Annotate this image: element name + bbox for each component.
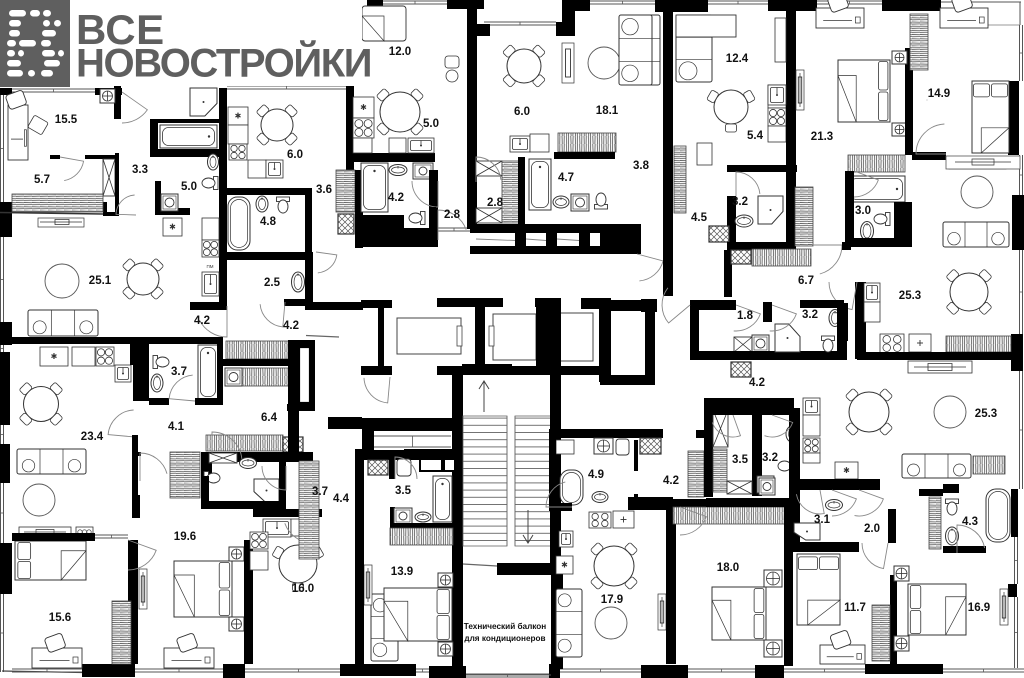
svg-text:3.0: 3.0 — [855, 205, 871, 217]
svg-text:3.2: 3.2 — [732, 196, 748, 208]
svg-text:для кондиционеров: для кондиционеров — [464, 634, 545, 643]
svg-text:4.2: 4.2 — [194, 315, 210, 327]
svg-text:4.2: 4.2 — [283, 320, 299, 332]
svg-text:15.5: 15.5 — [55, 114, 78, 126]
svg-text:16.9: 16.9 — [968, 602, 990, 614]
svg-text:25.3: 25.3 — [975, 408, 997, 420]
svg-text:3.2: 3.2 — [802, 309, 818, 321]
svg-text:14.9: 14.9 — [928, 88, 950, 100]
svg-text:Технический балкон: Технический балкон — [464, 621, 547, 631]
svg-text:6.0: 6.0 — [514, 106, 530, 118]
svg-text:✱: ✱ — [843, 466, 850, 475]
svg-text:4.1: 4.1 — [168, 421, 185, 433]
svg-text:13.9: 13.9 — [391, 566, 413, 578]
svg-text:3.8: 3.8 — [633, 160, 650, 172]
svg-text:1.8: 1.8 — [737, 310, 754, 322]
svg-text:4.8: 4.8 — [260, 216, 277, 228]
svg-text:4.5: 4.5 — [691, 212, 708, 224]
svg-text:17.9: 17.9 — [601, 594, 623, 606]
svg-text:ПМ: ПМ — [207, 264, 214, 269]
svg-text:6.0: 6.0 — [287, 149, 303, 161]
svg-text:4.2: 4.2 — [663, 475, 679, 487]
svg-text:2.0: 2.0 — [864, 523, 880, 535]
svg-text:6.7: 6.7 — [798, 275, 814, 287]
svg-text:3.1: 3.1 — [814, 514, 831, 526]
svg-text:✱: ✱ — [235, 112, 242, 121]
svg-text:2.8: 2.8 — [487, 197, 504, 209]
svg-text:3.7: 3.7 — [171, 366, 187, 378]
svg-text:✱: ✱ — [169, 223, 176, 232]
svg-text:25.3: 25.3 — [899, 290, 921, 302]
svg-text:4.3: 4.3 — [962, 516, 978, 528]
svg-text:✱: ✱ — [561, 561, 568, 570]
svg-text:✱: ✱ — [51, 352, 58, 361]
svg-text:6.4: 6.4 — [261, 412, 278, 424]
svg-text:12.4: 12.4 — [726, 53, 749, 65]
svg-text:4.4: 4.4 — [333, 493, 350, 505]
svg-text:15.6: 15.6 — [49, 612, 71, 624]
svg-text:5.7: 5.7 — [34, 174, 50, 186]
svg-text:25.1: 25.1 — [89, 275, 112, 287]
svg-text:19.6: 19.6 — [174, 531, 196, 543]
svg-text:4.2: 4.2 — [749, 377, 765, 389]
svg-text:5.4: 5.4 — [747, 130, 764, 142]
svg-text:3.7: 3.7 — [312, 486, 328, 498]
svg-text:3.5: 3.5 — [395, 485, 412, 497]
svg-text:18.0: 18.0 — [717, 562, 739, 574]
svg-text:2.5: 2.5 — [264, 277, 281, 289]
svg-text:4.2: 4.2 — [388, 192, 404, 204]
svg-text:НОВОСТРОЙКИ: НОВОСТРОЙКИ — [76, 40, 371, 86]
svg-text:3.6: 3.6 — [316, 184, 332, 196]
svg-text:2.8: 2.8 — [444, 209, 461, 221]
svg-text:3.2: 3.2 — [762, 452, 778, 464]
svg-text:21.3: 21.3 — [811, 131, 833, 143]
svg-text:5.0: 5.0 — [181, 181, 197, 193]
svg-text:4.9: 4.9 — [588, 469, 604, 481]
svg-text:16.0: 16.0 — [292, 583, 314, 595]
svg-text:23.4: 23.4 — [81, 431, 104, 443]
svg-text:11.7: 11.7 — [844, 602, 866, 614]
svg-text:3.5: 3.5 — [732, 454, 749, 466]
svg-text:4.7: 4.7 — [558, 172, 574, 184]
svg-text:✱: ✱ — [360, 103, 367, 112]
svg-text:12.0: 12.0 — [389, 46, 411, 58]
svg-text:3.3: 3.3 — [132, 164, 148, 176]
svg-text:5.0: 5.0 — [423, 118, 439, 130]
svg-text:18.1: 18.1 — [596, 105, 619, 117]
